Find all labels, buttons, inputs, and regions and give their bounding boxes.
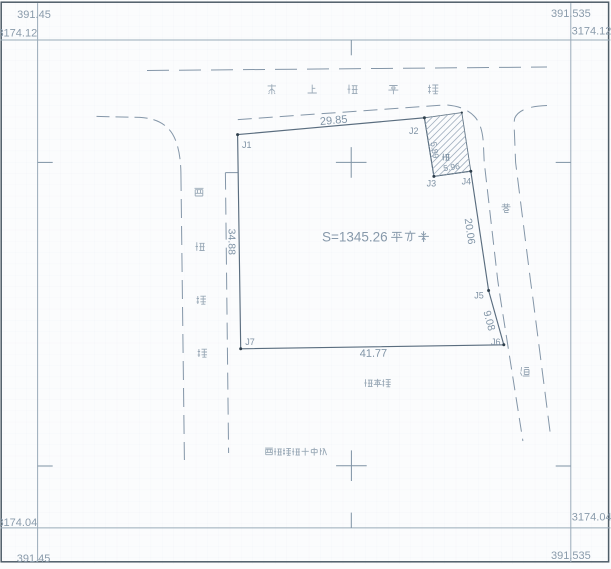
svg-text:41.77: 41.77 — [360, 348, 388, 360]
svg-text:J7: J7 — [245, 337, 255, 347]
svg-text:J4: J4 — [462, 177, 472, 187]
svg-text:5.96: 5.96 — [443, 161, 461, 173]
svg-text:391.45: 391.45 — [17, 553, 51, 564]
svg-text:J5: J5 — [474, 290, 484, 300]
svg-text:3174.12: 3174.12 — [572, 26, 611, 38]
svg-text:J2: J2 — [409, 126, 419, 136]
svg-text:J6: J6 — [491, 337, 501, 347]
svg-text:391.535: 391.535 — [551, 550, 591, 562]
svg-text:29.85: 29.85 — [319, 114, 347, 128]
svg-text:J3: J3 — [427, 178, 437, 188]
svg-text:3174.04: 3174.04 — [0, 517, 37, 529]
svg-text:3174.12: 3174.12 — [0, 27, 37, 39]
svg-text:34.88: 34.88 — [226, 229, 238, 255]
svg-text:J1: J1 — [242, 140, 252, 150]
svg-text:391.45: 391.45 — [17, 9, 51, 21]
svg-text:391.535: 391.535 — [551, 8, 591, 20]
svg-text:3174.04: 3174.04 — [572, 511, 611, 523]
svg-text:S=1345.26: S=1345.26 — [322, 230, 388, 245]
